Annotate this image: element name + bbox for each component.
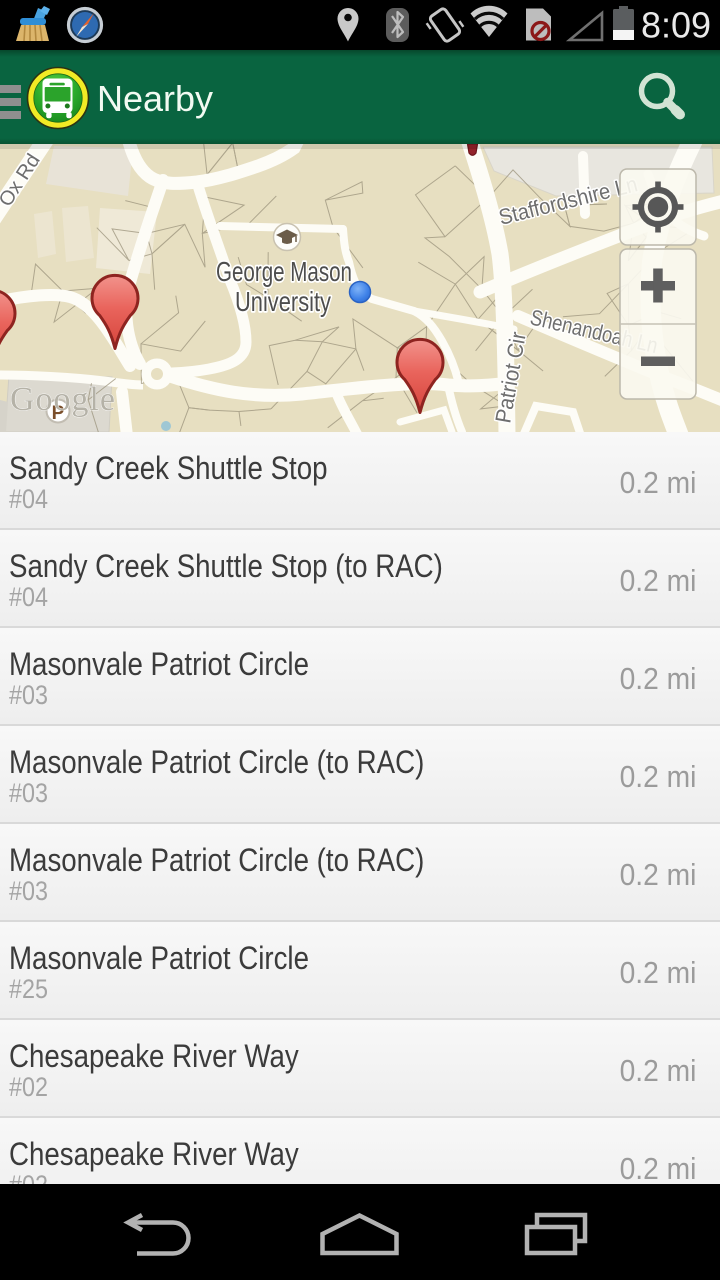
- svg-text:George Mason: George Mason: [216, 256, 352, 287]
- svg-text:Google: Google: [10, 381, 116, 418]
- svg-text:University: University: [235, 286, 331, 317]
- svg-text:Nearby: Nearby: [97, 78, 213, 119]
- svg-text:8:09: 8:09: [641, 5, 711, 46]
